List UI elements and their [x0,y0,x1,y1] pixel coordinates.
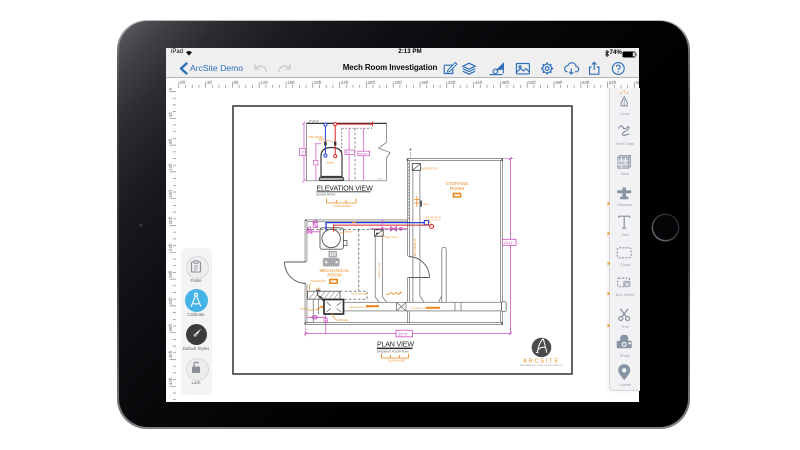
svg-text:20ft: 20ft [168,216,173,224]
svg-text:WALL MOUNT: WALL MOUNT [309,136,325,139]
svg-text:44ft: 44ft [474,80,482,85]
svg-text:20ft: 20ft [314,80,322,85]
svg-text:56ft: 56ft [555,80,563,85]
svg-text:60ft: 60ft [582,80,590,85]
svg-text:ROOM: ROOM [450,186,464,191]
svg-text:28ft: 28ft [367,80,375,85]
svg-text:32ft: 32ft [168,297,173,305]
svg-text:HEAT S/A UP: HEAT S/A UP [386,236,399,239]
svg-text:BASEMENT FLOOR PLAN: BASEMENT FLOOR PLAN [377,350,409,354]
svg-text:SCALE IN FEET: SCALE IN FEET [334,205,352,208]
svg-text:44ft: 44ft [168,377,173,385]
svg-text:ROOM: ROOM [327,273,341,278]
svg-text:7'6": 7'6" [301,150,305,155]
svg-text:8ft: 8ft [168,138,173,144]
svg-text:FLEX/GAS UP: FLEX/GAS UP [311,280,327,283]
svg-text:36ft: 36ft [168,323,173,331]
svg-text:4ft: 4ft [206,80,212,85]
svg-text:S/A RETURN AIR: S/A RETURN AIR [351,293,368,296]
svg-text:CEILING: CEILING [309,121,318,123]
svg-text:PLAN VIEW: PLAN VIEW [377,341,414,349]
svg-text:16ft: 16ft [287,80,295,85]
svg-text:48ft: 48ft [501,80,509,85]
svg-text:8ft: 8ft [233,80,239,85]
svg-text:24ft: 24ft [340,80,348,85]
svg-text:FURNACE: FURNACE [337,319,349,322]
svg-text:BOILER PIPING: BOILER PIPING [317,193,336,197]
svg-text:10'1/2": 10'1/2" [359,152,368,156]
svg-text:WALL: WALL [316,287,322,290]
svg-text:H/S SUPPLY UP: H/S SUPPLY UP [412,308,428,310]
svg-text:0ft: 0ft [168,88,173,90]
svg-text:WALL T: WALL T [423,203,431,206]
svg-text:A/C COND UP: A/C COND UP [428,219,442,222]
svg-text:12ft: 12ft [260,80,268,85]
svg-text:Boiler: Boiler [345,230,352,234]
svg-text:24ft: 24ft [168,243,173,251]
svg-text:Boiler: Boiler [327,160,334,164]
svg-text:29' 5": 29' 5" [398,331,409,336]
svg-text:S/A DUCT: S/A DUCT [300,308,310,311]
svg-text:68ft: 68ft [635,80,639,85]
svg-text:ARCSITE: ARCSITE [523,358,560,364]
svg-text:SCALE IN FEET: SCALE IN FEET [388,360,406,363]
svg-text:36ft: 36ft [421,80,429,85]
svg-text:DUCTWORK UP: DUCTWORK UP [415,238,417,256]
svg-text:9'4": 9'4" [346,151,351,155]
svg-text:MECHANICAL SITE INVESTIGATION: MECHANICAL SITE INVESTIGATION [520,364,563,367]
svg-text:0ft: 0ft [180,80,186,85]
svg-text:24'11": 24'11" [504,241,514,245]
svg-text:64ft: 64ft [608,80,616,85]
svg-text:S/A DUCT 14x8: S/A DUCT 14x8 [378,262,381,278]
svg-text:1/4"=1': 1/4"=1' [377,179,384,181]
svg-text:A/C REF SW UP: A/C REF SW UP [426,216,442,219]
svg-text:RA DUCT UP: RA DUCT UP [424,168,438,171]
svg-text:28ft: 28ft [168,270,173,278]
svg-text:40ft: 40ft [448,80,456,85]
svg-text:52ft: 52ft [528,80,536,85]
svg-text:40ft: 40ft [168,350,173,358]
svg-text:4ft: 4ft [168,111,173,117]
svg-text:16ft: 16ft [168,189,173,197]
svg-text:12ft: 12ft [168,163,173,171]
svg-text:32ft: 32ft [394,80,402,85]
